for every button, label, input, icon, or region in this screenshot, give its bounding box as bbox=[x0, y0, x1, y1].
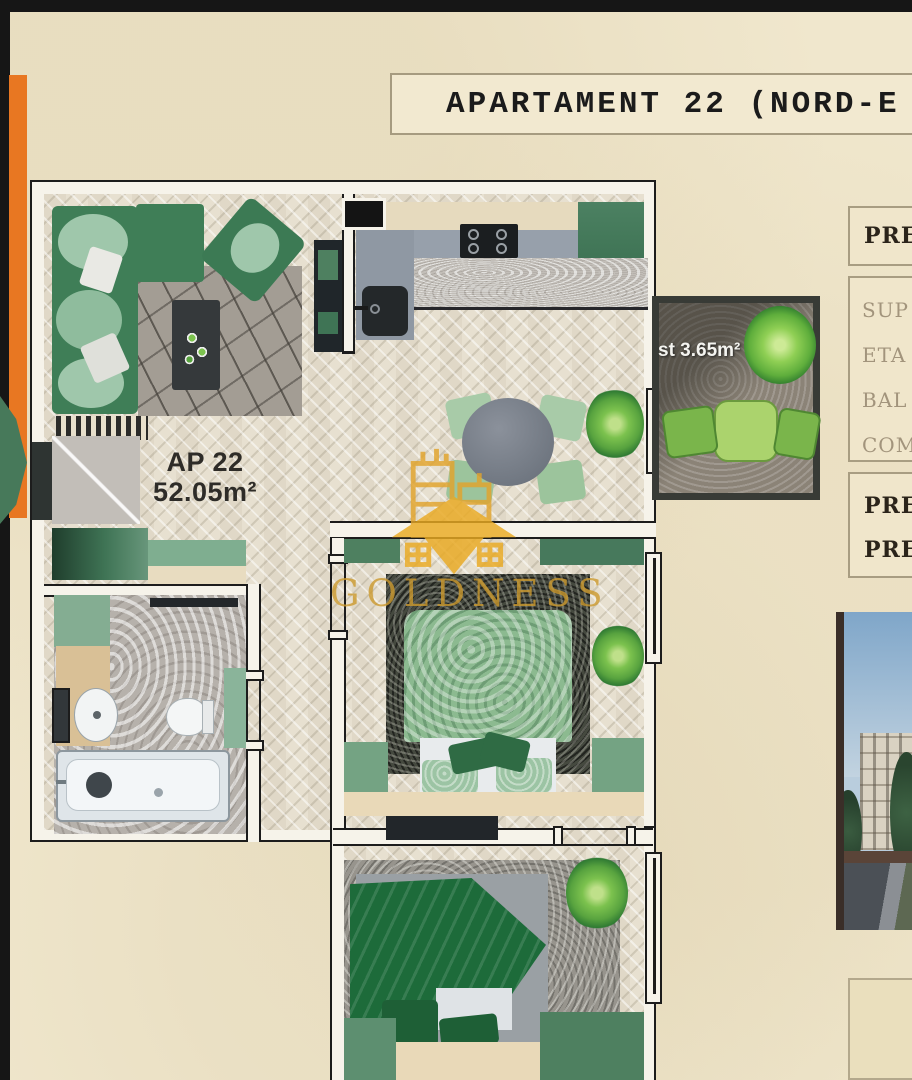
sofa-top bbox=[136, 204, 204, 282]
door-jamb bbox=[328, 630, 348, 640]
kitchen-sink bbox=[362, 286, 408, 336]
door-jamb bbox=[244, 740, 264, 751]
bathroom-green-corner bbox=[54, 595, 110, 647]
bottom-right-box bbox=[848, 978, 912, 1080]
bathtub bbox=[56, 750, 230, 822]
summary-price-label-1: PRE bbox=[864, 484, 912, 528]
detail-label-etaj: ETA bbox=[862, 333, 912, 378]
door-jamb bbox=[553, 826, 563, 846]
door-jamb bbox=[626, 826, 636, 846]
floorplan-page: APARTAMENT 22 (NORD-E bbox=[0, 0, 912, 1080]
apartment-label: AP 22 52.05m² bbox=[148, 447, 262, 507]
goldness-watermark-text: GOLDNESS bbox=[330, 572, 586, 615]
balcony-chair bbox=[772, 407, 822, 462]
sidebar-summary-box: PRE PRE bbox=[848, 472, 912, 578]
bedroom1-green-mat bbox=[344, 742, 388, 792]
bedroom1-furniture-band bbox=[344, 792, 644, 816]
plant-dining bbox=[586, 388, 644, 460]
toilet bbox=[166, 698, 206, 736]
towel-rail bbox=[150, 598, 238, 607]
tv-unit-living bbox=[314, 240, 342, 352]
photo-road bbox=[844, 863, 912, 930]
apartment-number: AP 22 bbox=[148, 447, 262, 477]
goldness-logo-icon bbox=[386, 438, 522, 588]
kitchen-island bbox=[414, 258, 648, 310]
door-gap-bedroom2 bbox=[560, 830, 628, 844]
window-bedroom2 bbox=[645, 852, 662, 1004]
kitchen-cabinet-green bbox=[578, 202, 644, 260]
balcony-table bbox=[714, 400, 778, 462]
window-bedroom1 bbox=[645, 552, 662, 664]
bedroom2-green-mat bbox=[540, 1012, 644, 1080]
bathroom-green-accent bbox=[224, 668, 246, 748]
bathroom-sink bbox=[74, 688, 118, 742]
entry-sideboard bbox=[52, 528, 148, 580]
entry-bench bbox=[148, 566, 246, 584]
kitchen-appliance bbox=[342, 198, 386, 230]
bedroom2-bench bbox=[396, 1042, 540, 1080]
door-gap-bathroom bbox=[248, 678, 259, 740]
door-jamb bbox=[244, 670, 264, 681]
entry-marble-tile bbox=[52, 436, 140, 524]
bedroom2-green-mat bbox=[344, 1018, 396, 1080]
apartment-area: 52.05m² bbox=[148, 477, 262, 507]
building-photo bbox=[836, 612, 912, 930]
balcony-chair bbox=[661, 405, 719, 460]
entry-door bbox=[32, 442, 52, 520]
plan-title: APARTAMENT 22 (NORD-E bbox=[446, 87, 900, 122]
plan-title-box: APARTAMENT 22 (NORD-E bbox=[390, 73, 912, 135]
bedroom1-bed-duvet bbox=[404, 610, 572, 742]
detail-label-suprafata: SUP bbox=[862, 288, 912, 333]
coffee-table bbox=[172, 300, 220, 390]
entry-sideboard-ext bbox=[148, 540, 246, 566]
summary-price-label-2: PRE bbox=[864, 528, 912, 572]
detail-label-compartimentare: COM bbox=[862, 423, 912, 462]
top-frame-bar bbox=[0, 0, 912, 12]
price-label: PRE bbox=[864, 223, 912, 249]
sidebar-details-box: SUP ETA BAL COM bbox=[848, 276, 912, 462]
toilet-tank bbox=[202, 700, 214, 734]
bathroom-mirror bbox=[52, 688, 70, 743]
balcony-area-label: st 3.65m² bbox=[658, 340, 768, 362]
tv-stand bbox=[386, 816, 498, 840]
plant-bedroom1 bbox=[592, 624, 644, 688]
living-rug bbox=[138, 266, 302, 416]
sidebar-price-box: PRE bbox=[848, 206, 912, 266]
plant-bedroom2 bbox=[566, 856, 628, 930]
stove-hob bbox=[460, 224, 518, 258]
detail-label-balcon: BAL bbox=[862, 378, 912, 423]
bedroom1-green-mat bbox=[592, 738, 644, 792]
bedroom1-cabinet bbox=[540, 539, 644, 565]
